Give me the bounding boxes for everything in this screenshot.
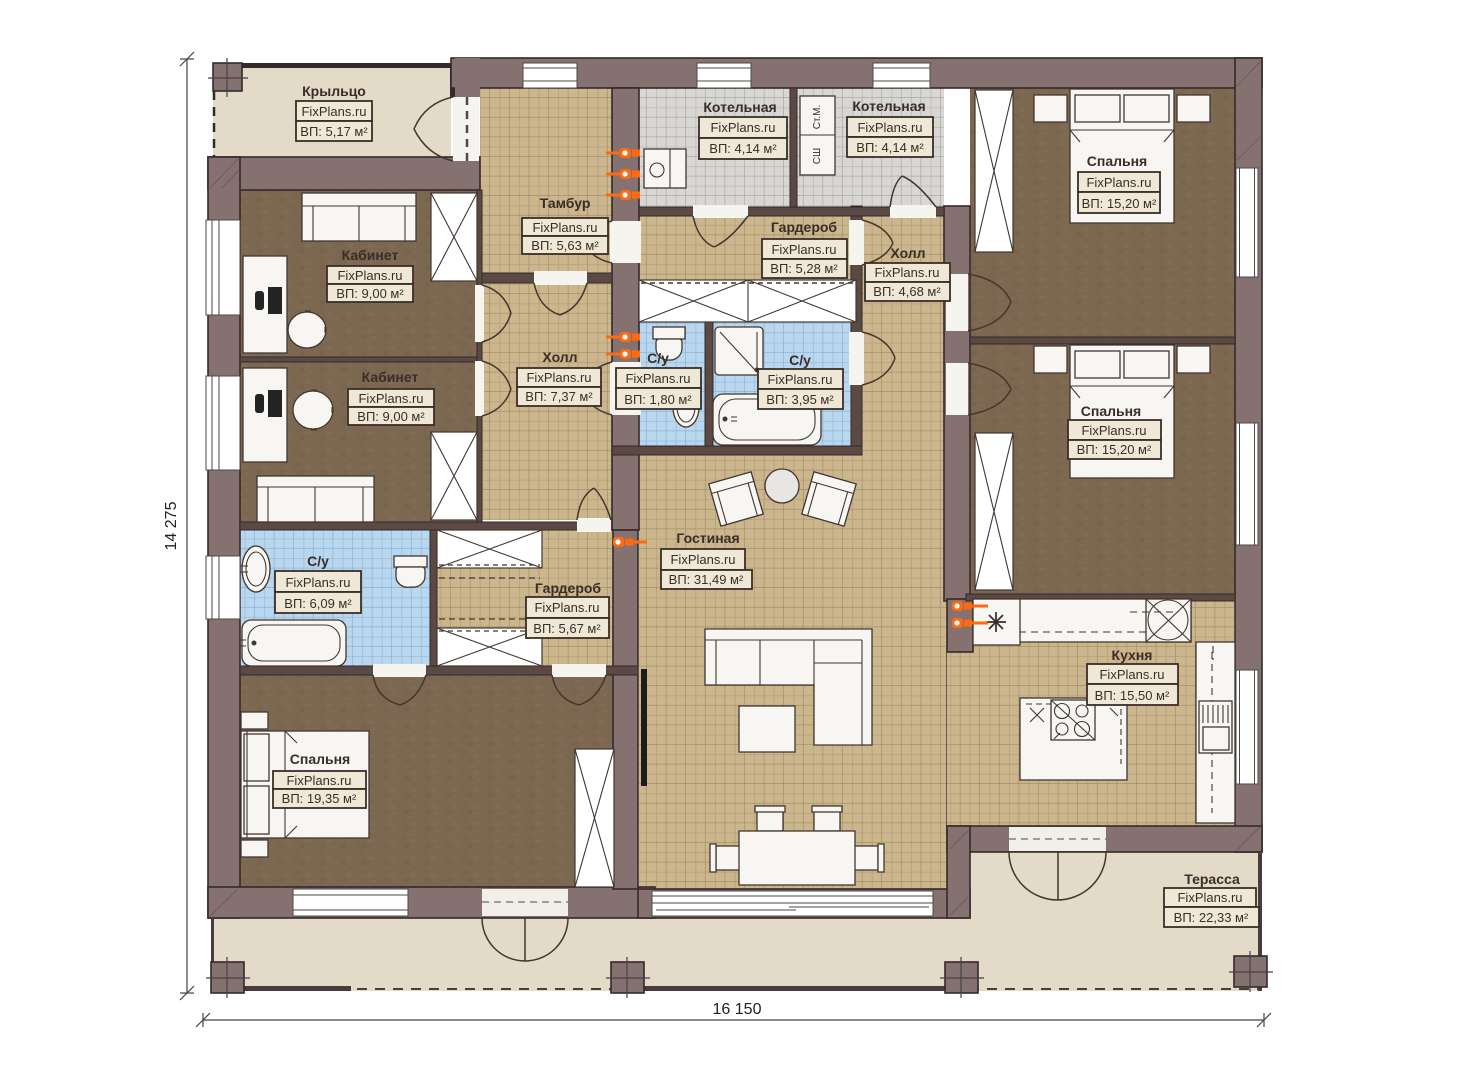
svg-text:Терасса: Терасса <box>1184 871 1240 887</box>
svg-text:Ст.М.: Ст.М. <box>812 105 823 130</box>
svg-text:FixPlans.ru: FixPlans.ru <box>771 242 836 257</box>
svg-text:ВП: 22,33 м²: ВП: 22,33 м² <box>1174 910 1249 925</box>
svg-text:ВП: 4,14 м²: ВП: 4,14 м² <box>709 141 777 156</box>
svg-text:ВП: 6,09 м²: ВП: 6,09 м² <box>284 596 352 611</box>
svg-text:ВП: 31,49 м²: ВП: 31,49 м² <box>669 572 744 587</box>
svg-text:FixPlans.ru: FixPlans.ru <box>301 104 366 119</box>
svg-text:ВП: 5,28 м²: ВП: 5,28 м² <box>770 261 838 276</box>
svg-text:FixPlans.ru: FixPlans.ru <box>1177 890 1242 905</box>
svg-text:FixPlans.ru: FixPlans.ru <box>1099 667 1164 682</box>
svg-text:С/у: С/у <box>789 352 811 368</box>
svg-text:Гардероб: Гардероб <box>771 219 838 235</box>
svg-text:Кабинет: Кабинет <box>342 247 399 263</box>
svg-text:ВП: 7,37 м²: ВП: 7,37 м² <box>525 389 593 404</box>
svg-text:Кабинет: Кабинет <box>362 369 419 385</box>
svg-text:Гостиная: Гостиная <box>676 530 739 546</box>
svg-text:ВП: 15,20 м²: ВП: 15,20 м² <box>1077 442 1152 457</box>
svg-text:FixPlans.ru: FixPlans.ru <box>532 220 597 235</box>
svg-text:ВП: 4,68 м²: ВП: 4,68 м² <box>873 284 941 299</box>
svg-text:Кухня: Кухня <box>1112 647 1153 663</box>
svg-text:FixPlans.ru: FixPlans.ru <box>285 575 350 590</box>
svg-text:ВП: 9,00 м²: ВП: 9,00 м² <box>357 409 425 424</box>
svg-text:ВП: 5,67 м²: ВП: 5,67 м² <box>533 621 601 636</box>
svg-text:Холл: Холл <box>542 349 577 365</box>
svg-text:FixPlans.ru: FixPlans.ru <box>670 552 735 567</box>
svg-text:ВП: 15,20 м²: ВП: 15,20 м² <box>1082 196 1157 211</box>
svg-text:FixPlans.ru: FixPlans.ru <box>1081 423 1146 438</box>
svg-text:СШ: СШ <box>812 148 823 164</box>
svg-text:Спальня: Спальня <box>1081 403 1141 419</box>
svg-text:FixPlans.ru: FixPlans.ru <box>534 600 599 615</box>
svg-text:ВП: 15,50 м²: ВП: 15,50 м² <box>1095 688 1170 703</box>
svg-text:ВП: 4,14 м²: ВП: 4,14 м² <box>856 140 924 155</box>
svg-text:Гардероб: Гардероб <box>535 580 602 596</box>
svg-text:Холл: Холл <box>890 245 925 261</box>
svg-text:Спальня: Спальня <box>1087 153 1147 169</box>
svg-text:FixPlans.ru: FixPlans.ru <box>710 120 775 135</box>
svg-text:ВП: 5,17 м²: ВП: 5,17 м² <box>300 124 368 139</box>
svg-text:ВП: 19,35 м²: ВП: 19,35 м² <box>282 791 357 806</box>
svg-text:Крыльцо: Крыльцо <box>302 83 366 99</box>
svg-text:FixPlans.ru: FixPlans.ru <box>337 268 402 283</box>
svg-text:С/у: С/у <box>647 350 669 366</box>
svg-text:ВП: 9,00 м²: ВП: 9,00 м² <box>336 286 404 301</box>
svg-text:FixPlans.ru: FixPlans.ru <box>625 371 690 386</box>
svg-text:14 275: 14 275 <box>163 501 180 550</box>
svg-text:С/у: С/у <box>307 553 329 569</box>
svg-text:FixPlans.ru: FixPlans.ru <box>767 372 832 387</box>
svg-text:ВП: 1,80 м²: ВП: 1,80 м² <box>624 392 692 407</box>
svg-text:Спальня: Спальня <box>290 751 350 767</box>
svg-text:ВП: 3,95 м²: ВП: 3,95 м² <box>766 392 834 407</box>
svg-text:FixPlans.ru: FixPlans.ru <box>874 265 939 280</box>
svg-text:Котельная: Котельная <box>703 99 776 115</box>
svg-text:FixPlans.ru: FixPlans.ru <box>286 773 351 788</box>
svg-text:FixPlans.ru: FixPlans.ru <box>526 370 591 385</box>
svg-text:FixPlans.ru: FixPlans.ru <box>1086 175 1151 190</box>
svg-text:16 150: 16 150 <box>713 1001 762 1018</box>
svg-text:FixPlans.ru: FixPlans.ru <box>358 391 423 406</box>
svg-text:ВП: 5,63 м²: ВП: 5,63 м² <box>531 238 599 253</box>
svg-text:Котельная: Котельная <box>852 98 925 114</box>
svg-text:FixPlans.ru: FixPlans.ru <box>857 120 922 135</box>
svg-text:Тамбур: Тамбур <box>540 195 591 211</box>
